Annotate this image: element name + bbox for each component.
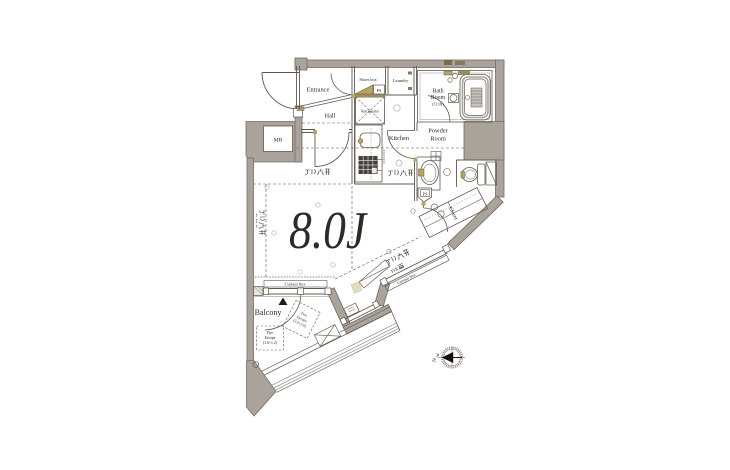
svg-text:Room: Room bbox=[430, 136, 446, 143]
svg-text:PS: PS bbox=[423, 192, 428, 197]
svg-text:(1116): (1116) bbox=[432, 102, 444, 107]
svg-text:Room: Room bbox=[431, 95, 446, 101]
svg-text:8.0J: 8.0J bbox=[289, 202, 368, 260]
svg-text:Balcony: Balcony bbox=[255, 308, 282, 317]
svg-text:Laundry: Laundry bbox=[393, 78, 409, 83]
svg-text:(1.6×1.2): (1.6×1.2) bbox=[263, 341, 278, 345]
svg-text:Bath: Bath bbox=[433, 89, 444, 95]
svg-text:MB: MB bbox=[274, 138, 283, 144]
svg-text:Shoes box: Shoes box bbox=[359, 77, 377, 82]
svg-text:Curtain box: Curtain box bbox=[285, 282, 307, 287]
svg-text:Hall: Hall bbox=[324, 113, 335, 120]
svg-text:Kitchen: Kitchen bbox=[389, 135, 410, 142]
svg-text:Escape: Escape bbox=[265, 336, 276, 340]
svg-text:PS: PS bbox=[377, 88, 382, 93]
svg-text:Fire: Fire bbox=[267, 331, 273, 335]
svg-text:Powder: Powder bbox=[428, 128, 448, 135]
svg-text:N: N bbox=[433, 358, 438, 362]
svg-text:Entrance: Entrance bbox=[307, 87, 330, 94]
svg-text:Refrigerator: Refrigerator bbox=[361, 110, 379, 114]
